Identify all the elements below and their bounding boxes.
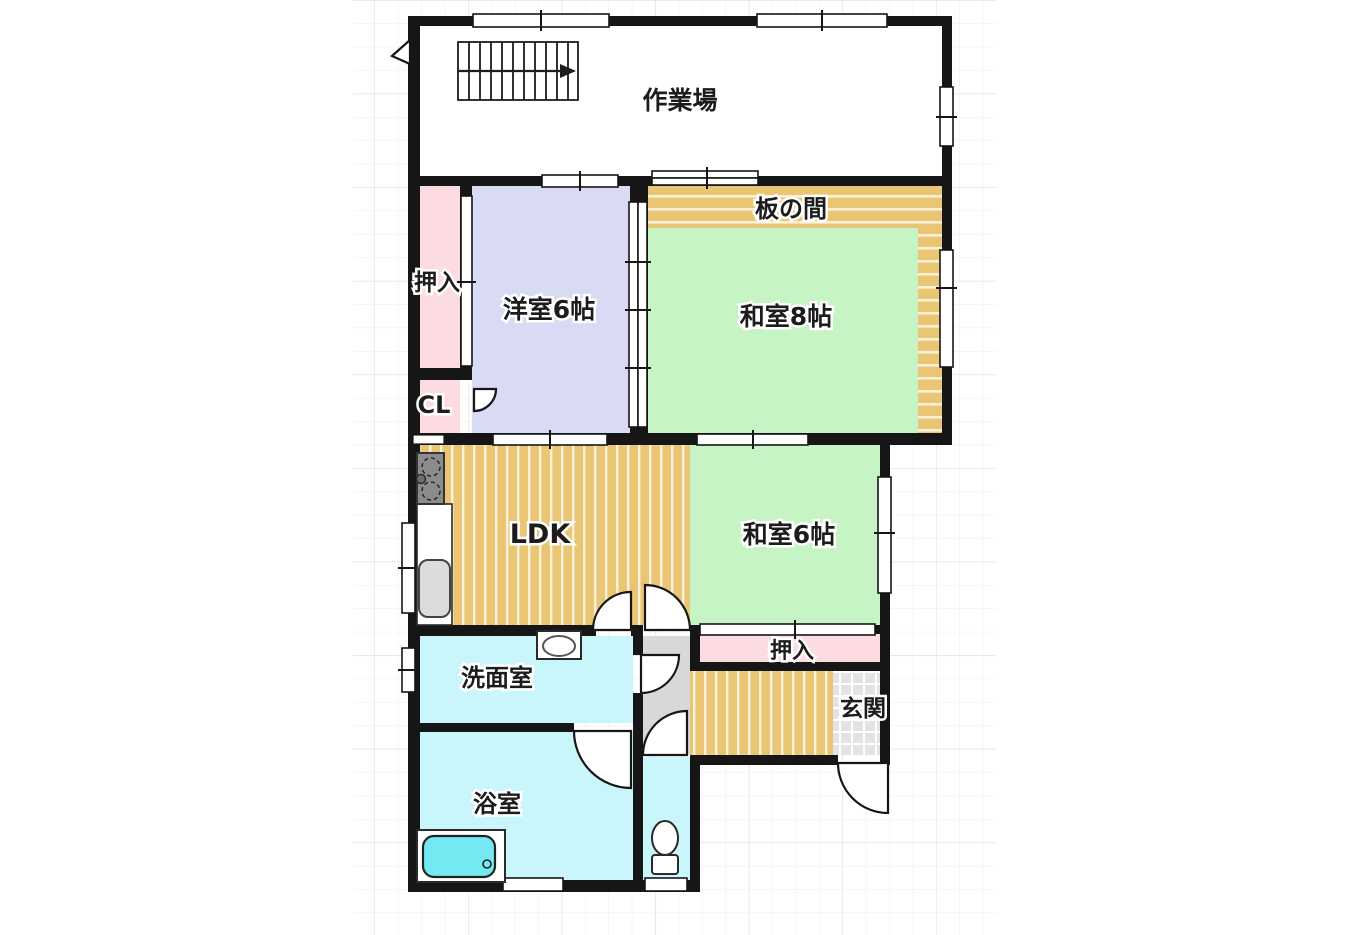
sliding-door — [652, 167, 758, 189]
room-label-yoshitsu6: 洋室6帖 — [503, 295, 595, 324]
room-label-ldk: LDK — [510, 519, 572, 550]
hallway-wood — [690, 671, 833, 755]
floorplan-canvas: 作業場 板の間 和室8帖 洋室6帖 押入 CL LDK 和室6帖 押入 玄関 洗… — [0, 0, 1350, 935]
window — [503, 878, 563, 891]
room-label-oshiire-lower: 押入 — [770, 638, 814, 664]
room-label-washitsu6: 和室6帖 — [743, 520, 835, 549]
room-label-workshop: 作業場 — [642, 86, 717, 115]
gas-stove-icon — [417, 453, 445, 504]
toilet-icon — [652, 821, 678, 874]
room-label-genkan: 玄関 — [840, 695, 886, 722]
room-label-itanoma: 板の間 — [755, 195, 827, 223]
room-label-yokushitsu: 浴室 — [473, 790, 521, 818]
bathtub-icon — [417, 830, 505, 882]
floorplan-drawing: 作業場 板の間 和室8帖 洋室6帖 押入 CL LDK 和室6帖 押入 玄関 洗… — [0, 0, 1350, 935]
kitchen-sink-icon — [419, 560, 450, 617]
wash-basin-icon — [537, 631, 581, 659]
sliding-door — [625, 202, 651, 427]
room-label-closet: CL — [418, 391, 451, 419]
room-label-oshiire-upper: 押入 — [414, 270, 460, 296]
room-label-washitsu8: 和室8帖 — [740, 302, 832, 331]
stairs-icon — [458, 42, 578, 100]
window — [645, 878, 687, 891]
room-label-senmenshitsu: 洗面室 — [461, 664, 533, 692]
wall-opening — [413, 435, 444, 444]
